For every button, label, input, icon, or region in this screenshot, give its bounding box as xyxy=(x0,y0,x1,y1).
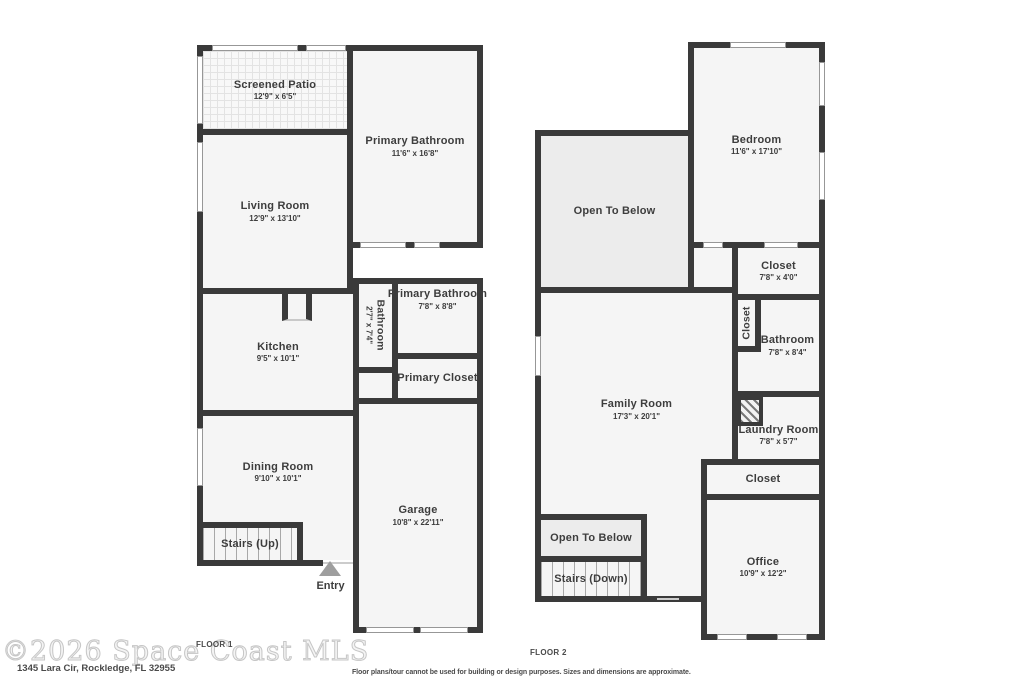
entry-label: Entry xyxy=(308,580,353,592)
garage-door xyxy=(420,627,468,633)
window xyxy=(360,242,406,248)
property-address: 1345 Lara Cir, Rockledge, FL 32955 xyxy=(17,663,175,674)
window xyxy=(717,634,747,640)
room-dims: 12'9" x 13'10" xyxy=(241,214,310,223)
room-primary-bathroom-large: Primary Bathroom 11'6" x 16'8" xyxy=(347,45,483,248)
floorplan-canvas: Screened Patio 12'9" x 6'5" Living Room … xyxy=(0,0,1024,683)
room-dims: 7'8" x 8'4" xyxy=(761,348,815,357)
room-dims: 9'5" x 10'1" xyxy=(257,354,300,363)
room-open-to-below-large: Open To Below xyxy=(535,130,694,293)
room-dims: 11'6" x 17'10" xyxy=(731,147,782,156)
garage-door xyxy=(366,627,414,633)
window xyxy=(819,62,825,106)
room-dims: 17'3" x 20'1" xyxy=(601,412,672,421)
window xyxy=(306,45,346,51)
window xyxy=(777,634,807,640)
room-closet-vertical: Closet xyxy=(732,294,761,352)
room-closet-top: Closet 7'8" x 4'0" xyxy=(732,242,825,300)
room-dims: 10'9" x 12'2" xyxy=(740,569,787,578)
room-primary-bathroom-small: Primary Bathroom 7'8" x 8'8" xyxy=(392,278,483,359)
room-name: Garage xyxy=(393,504,444,517)
room-name: Living Room xyxy=(241,200,310,213)
window xyxy=(197,142,203,212)
room-kitchen: Kitchen 9'5" x 10'1" xyxy=(197,288,359,416)
room-name: Closet xyxy=(740,306,752,339)
room-dims: 9'10" x 10'1" xyxy=(243,474,314,483)
entry-arrow-icon xyxy=(319,561,341,576)
kitchen-pantry-box xyxy=(282,288,312,321)
window xyxy=(819,152,825,200)
room-name: Closet xyxy=(759,260,797,273)
room-name: Bedroom xyxy=(731,134,782,147)
window xyxy=(730,42,786,48)
room-stairs-up: Stairs (Up) xyxy=(197,522,303,566)
room-dining-room: Dining Room 9'10" x 10'1" xyxy=(197,410,359,528)
room-name: Open To Below xyxy=(550,532,632,545)
room-name: Screened Patio xyxy=(234,79,316,92)
room-screened-patio: Screened Patio 12'9" x 6'5" xyxy=(197,45,353,135)
window xyxy=(197,428,203,486)
window xyxy=(212,45,298,51)
room-dims: 7'8" x 4'0" xyxy=(759,273,797,282)
room-name: Kitchen xyxy=(257,341,300,354)
window xyxy=(197,56,203,124)
room-name: Primary Closet xyxy=(397,372,477,385)
room-office: Office 10'9" x 12'2" xyxy=(701,494,825,640)
room-dims: 10'8" x 22'11" xyxy=(393,518,444,527)
laundry-hatch xyxy=(737,396,763,426)
window xyxy=(535,336,541,376)
floor2-caption: FLOOR 2 xyxy=(530,648,567,657)
room-garage: Garage 10'8" x 22'11" xyxy=(353,398,483,633)
floor1-caption: FLOOR 1 xyxy=(196,640,233,649)
disclaimer-text: Floor plans/tour cannot be used for buil… xyxy=(352,669,691,676)
room-dims: 11'6" x 16'8" xyxy=(365,149,464,158)
window xyxy=(703,242,723,248)
room-name: Closet xyxy=(746,473,781,486)
room-open-to-below-small: Open To Below xyxy=(535,514,647,562)
room-name: Open To Below xyxy=(574,205,656,218)
room-name: Dining Room xyxy=(243,461,314,474)
room-dims: 12'9" x 6'5" xyxy=(234,92,316,101)
room-primary-closet: Primary Closet xyxy=(392,353,483,404)
room-name: Primary Bathroom xyxy=(365,135,464,148)
door-threshold xyxy=(657,598,679,600)
room-living-room: Living Room 12'9" x 13'10" xyxy=(197,129,353,294)
window xyxy=(764,242,798,248)
room-stairs-down: Stairs (Down) xyxy=(535,556,647,602)
room-name: Office xyxy=(740,556,787,569)
room-bedroom: Bedroom 11'6" x 17'10" xyxy=(688,42,825,248)
room-dims: 7'8" x 8'8" xyxy=(388,302,487,311)
room-dims: 7'8" x 5'7" xyxy=(738,437,818,446)
window xyxy=(414,242,440,248)
room-dims: 2'7" x 7'4" xyxy=(364,300,373,351)
room-name: Stairs (Down) xyxy=(554,573,628,586)
room-name: Family Room xyxy=(601,398,672,411)
room-name: Stairs (Up) xyxy=(221,538,279,551)
room-name: Bathroom xyxy=(761,334,815,347)
room-name: Primary Bathroom xyxy=(388,288,487,301)
room-name: Bathroom xyxy=(375,300,387,351)
